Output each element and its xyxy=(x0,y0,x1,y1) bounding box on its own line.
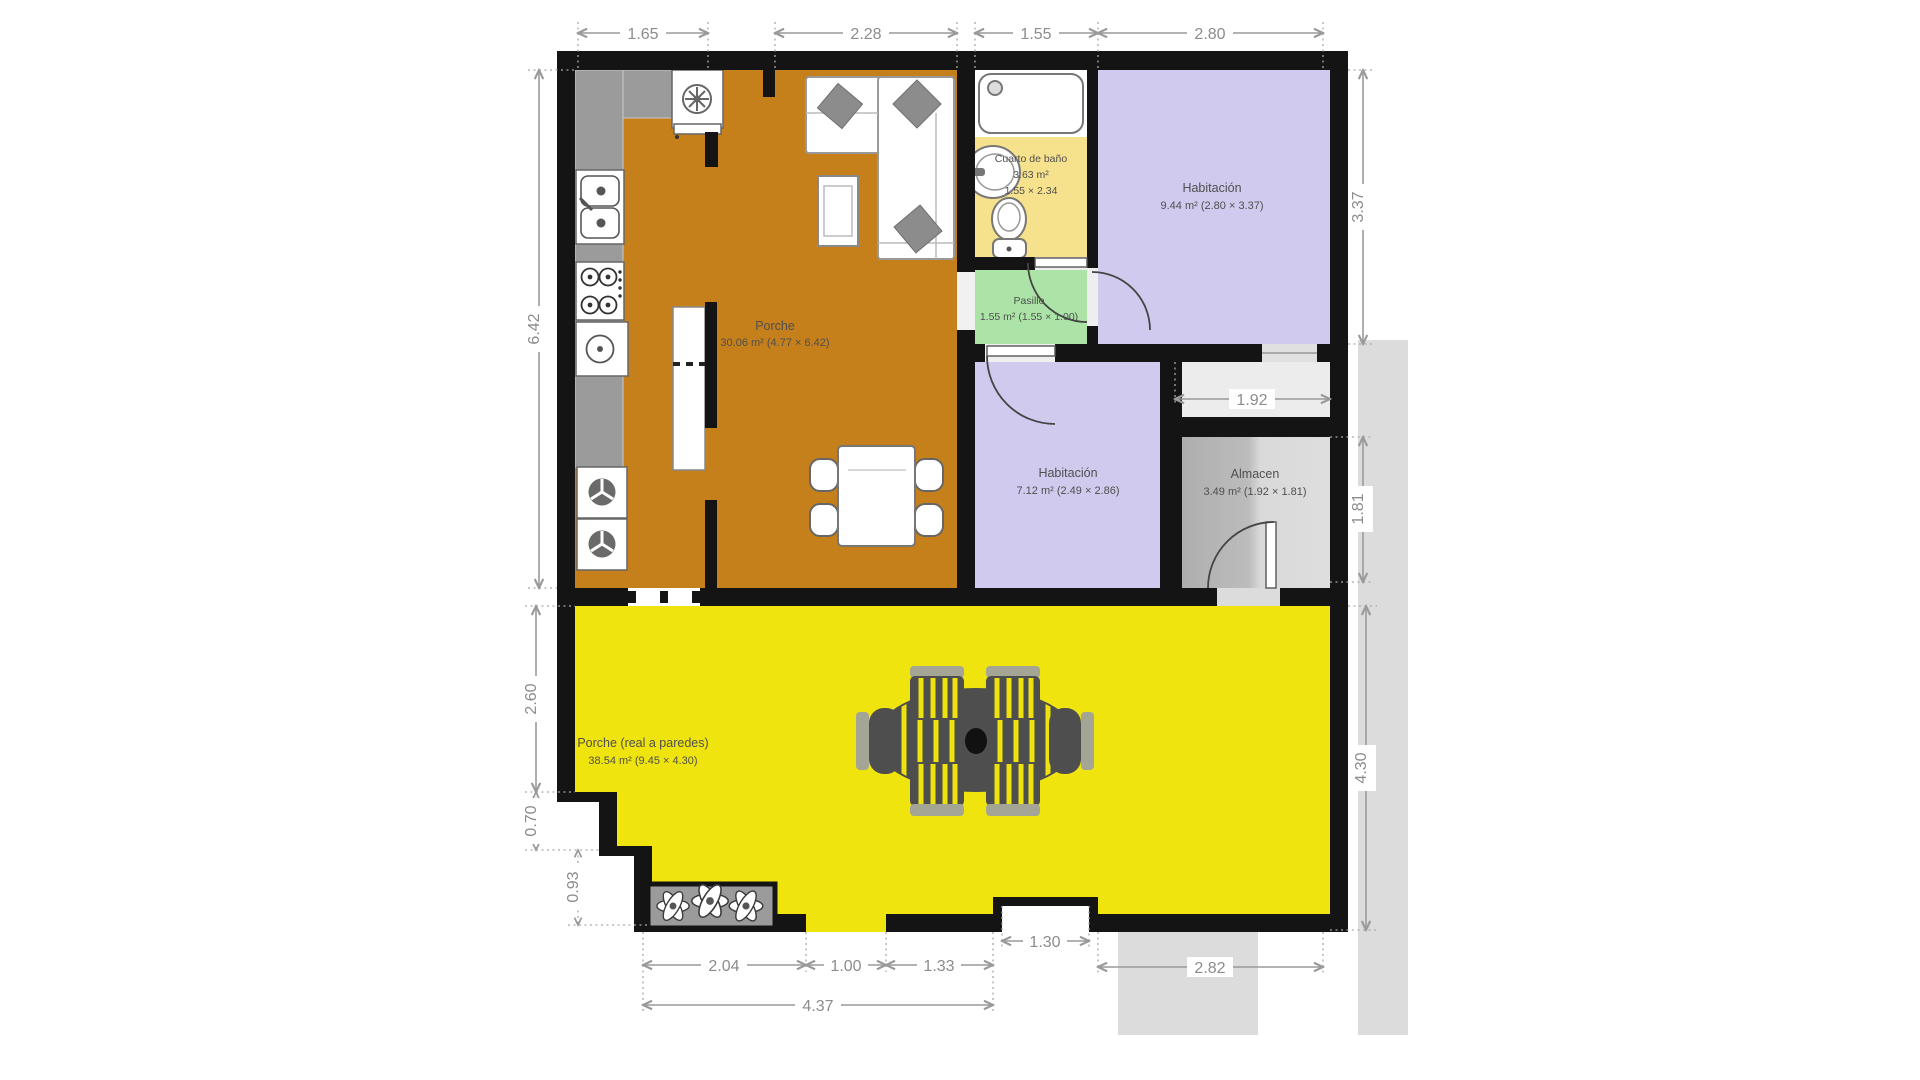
dim-top-3: 1.55 xyxy=(1020,26,1051,43)
label-bano: Cuarto de baño xyxy=(995,153,1068,165)
dim-right-337: 3.37 xyxy=(1350,191,1367,222)
outdoor-chair xyxy=(986,762,1040,816)
dining-chair xyxy=(915,459,943,491)
label-almacen-area: 3.49 m² (1.92 × 1.81) xyxy=(1203,486,1306,498)
dryer-icon xyxy=(577,519,627,570)
label-habitacion2: Habitación xyxy=(1038,466,1097,480)
fridge-icon xyxy=(672,70,723,139)
dim-top-1: 1.65 xyxy=(627,26,658,43)
label-pasillo-area: 1.55 m² (1.55 × 1.00) xyxy=(980,311,1078,323)
door-opening-bedroom1 xyxy=(1087,268,1098,326)
dim-top-4: 2.80 xyxy=(1194,26,1225,43)
dishwasher-icon xyxy=(576,322,628,376)
dim-left-642: 6.42 xyxy=(526,313,543,344)
label-porche-exterior: Porche (real a paredes) xyxy=(577,736,708,750)
dim-left-070: 0.70 xyxy=(523,805,540,836)
door-leaf-almacen xyxy=(1266,522,1276,588)
toilet-icon xyxy=(992,198,1026,258)
dim-bottom-130: 1.30 xyxy=(1029,934,1060,951)
dim-bottom-282: 2.82 xyxy=(1194,960,1225,977)
label-porche-area: 30.06 m² (4.77 × 6.42) xyxy=(720,337,829,349)
dining-table xyxy=(838,446,915,546)
label-bano-area: 3.63 m² xyxy=(1013,169,1049,181)
dim-right-430: 4.30 xyxy=(1353,752,1370,783)
label-almacen: Almacen xyxy=(1231,467,1280,481)
washing-machine-icon xyxy=(577,467,627,518)
dining-chair xyxy=(810,459,838,491)
dining-chair xyxy=(810,504,838,536)
door-leaf-bath xyxy=(1035,258,1087,267)
dining-chair xyxy=(915,504,943,536)
dim-right-181: 1.81 xyxy=(1350,493,1367,524)
label-bano-size: 1.55 × 2.34 xyxy=(1005,185,1058,197)
label-habitacion1: Habitación xyxy=(1182,181,1241,195)
outdoor-chair xyxy=(986,666,1040,720)
kitchen-island xyxy=(673,307,705,470)
dim-bottom-204: 2.04 xyxy=(708,958,739,975)
label-porche-exterior-area: 38.54 m² (9.45 × 4.30) xyxy=(588,755,697,767)
dim-top-2: 2.28 xyxy=(850,26,881,43)
label-pasillo: Pasillo xyxy=(1014,295,1045,307)
floor-plan-page: Porche 30.06 m² (4.77 × 6.42) Cuarto de … xyxy=(0,0,1920,1080)
door-opening-almacen xyxy=(1217,588,1280,606)
passage-porche-pasillo xyxy=(957,272,975,330)
label-porche: Porche xyxy=(755,319,795,333)
dim-left-093: 0.93 xyxy=(565,871,582,902)
dim-bottom-437: 4.37 xyxy=(802,998,833,1015)
door-leaf-habitacion2 xyxy=(987,346,1055,356)
label-habitacion2-area: 7.12 m² (2.49 × 2.86) xyxy=(1016,485,1119,497)
floor-plan-canvas: Porche 30.06 m² (4.77 × 6.42) Cuarto de … xyxy=(0,0,1920,1080)
outdoor-chair xyxy=(910,666,964,720)
outdoor-chair xyxy=(910,762,964,816)
shower-drain-icon xyxy=(988,81,1002,95)
room-almacen-floor xyxy=(1182,437,1330,588)
kitchen-sink-icon xyxy=(576,170,624,244)
planter xyxy=(648,882,775,928)
dim-right-192: 1.92 xyxy=(1236,392,1267,409)
coffee-table xyxy=(818,176,858,246)
label-habitacion1-area: 9.44 m² (2.80 × 3.37) xyxy=(1160,200,1263,212)
dim-bottom-100: 1.00 xyxy=(830,958,861,975)
stove-icon xyxy=(576,262,624,320)
dim-left-260: 2.60 xyxy=(523,683,540,714)
dim-bottom-133: 1.33 xyxy=(923,958,954,975)
table-umbrella-hole xyxy=(965,728,987,754)
